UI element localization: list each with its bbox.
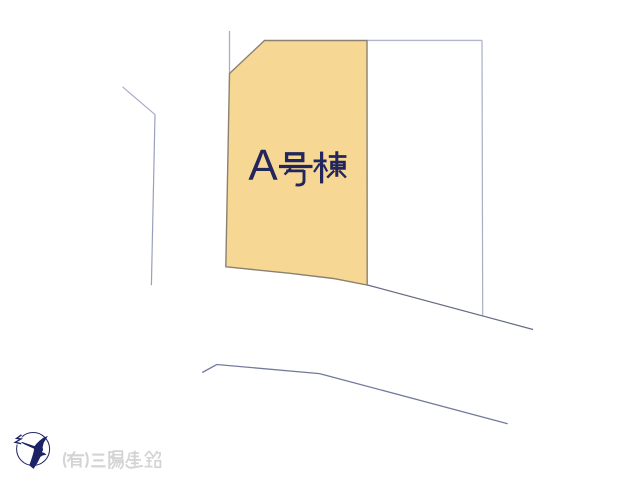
svg-text:A: A xyxy=(248,141,278,190)
